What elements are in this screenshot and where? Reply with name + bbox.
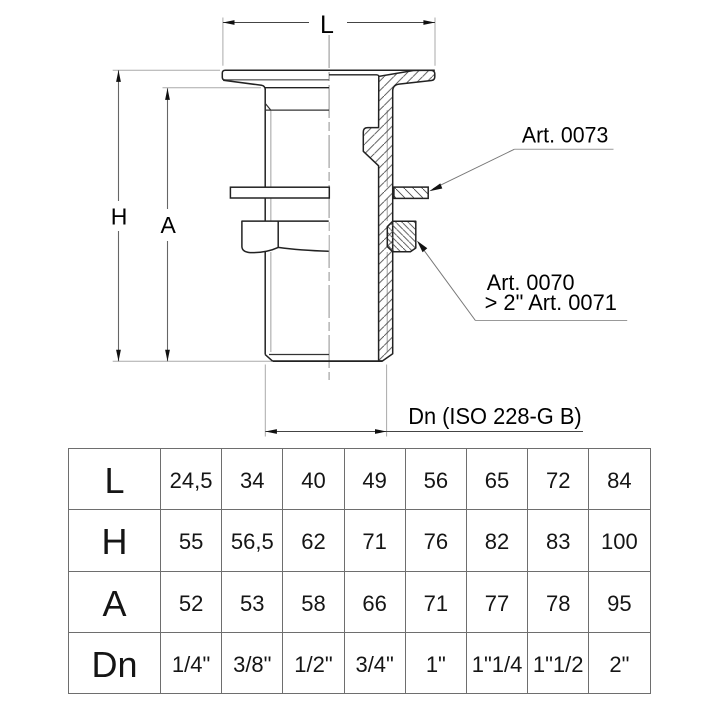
svg-text:A: A [161,212,177,238]
svg-text:L: L [320,11,334,39]
svg-text:Dn (ISO 228-G B): Dn (ISO 228-G B) [408,403,582,429]
svg-text:> 2" Art. 0071: > 2" Art. 0071 [485,290,617,315]
svg-text:H: H [111,203,128,229]
svg-text:Art. 0073: Art. 0073 [522,123,608,148]
